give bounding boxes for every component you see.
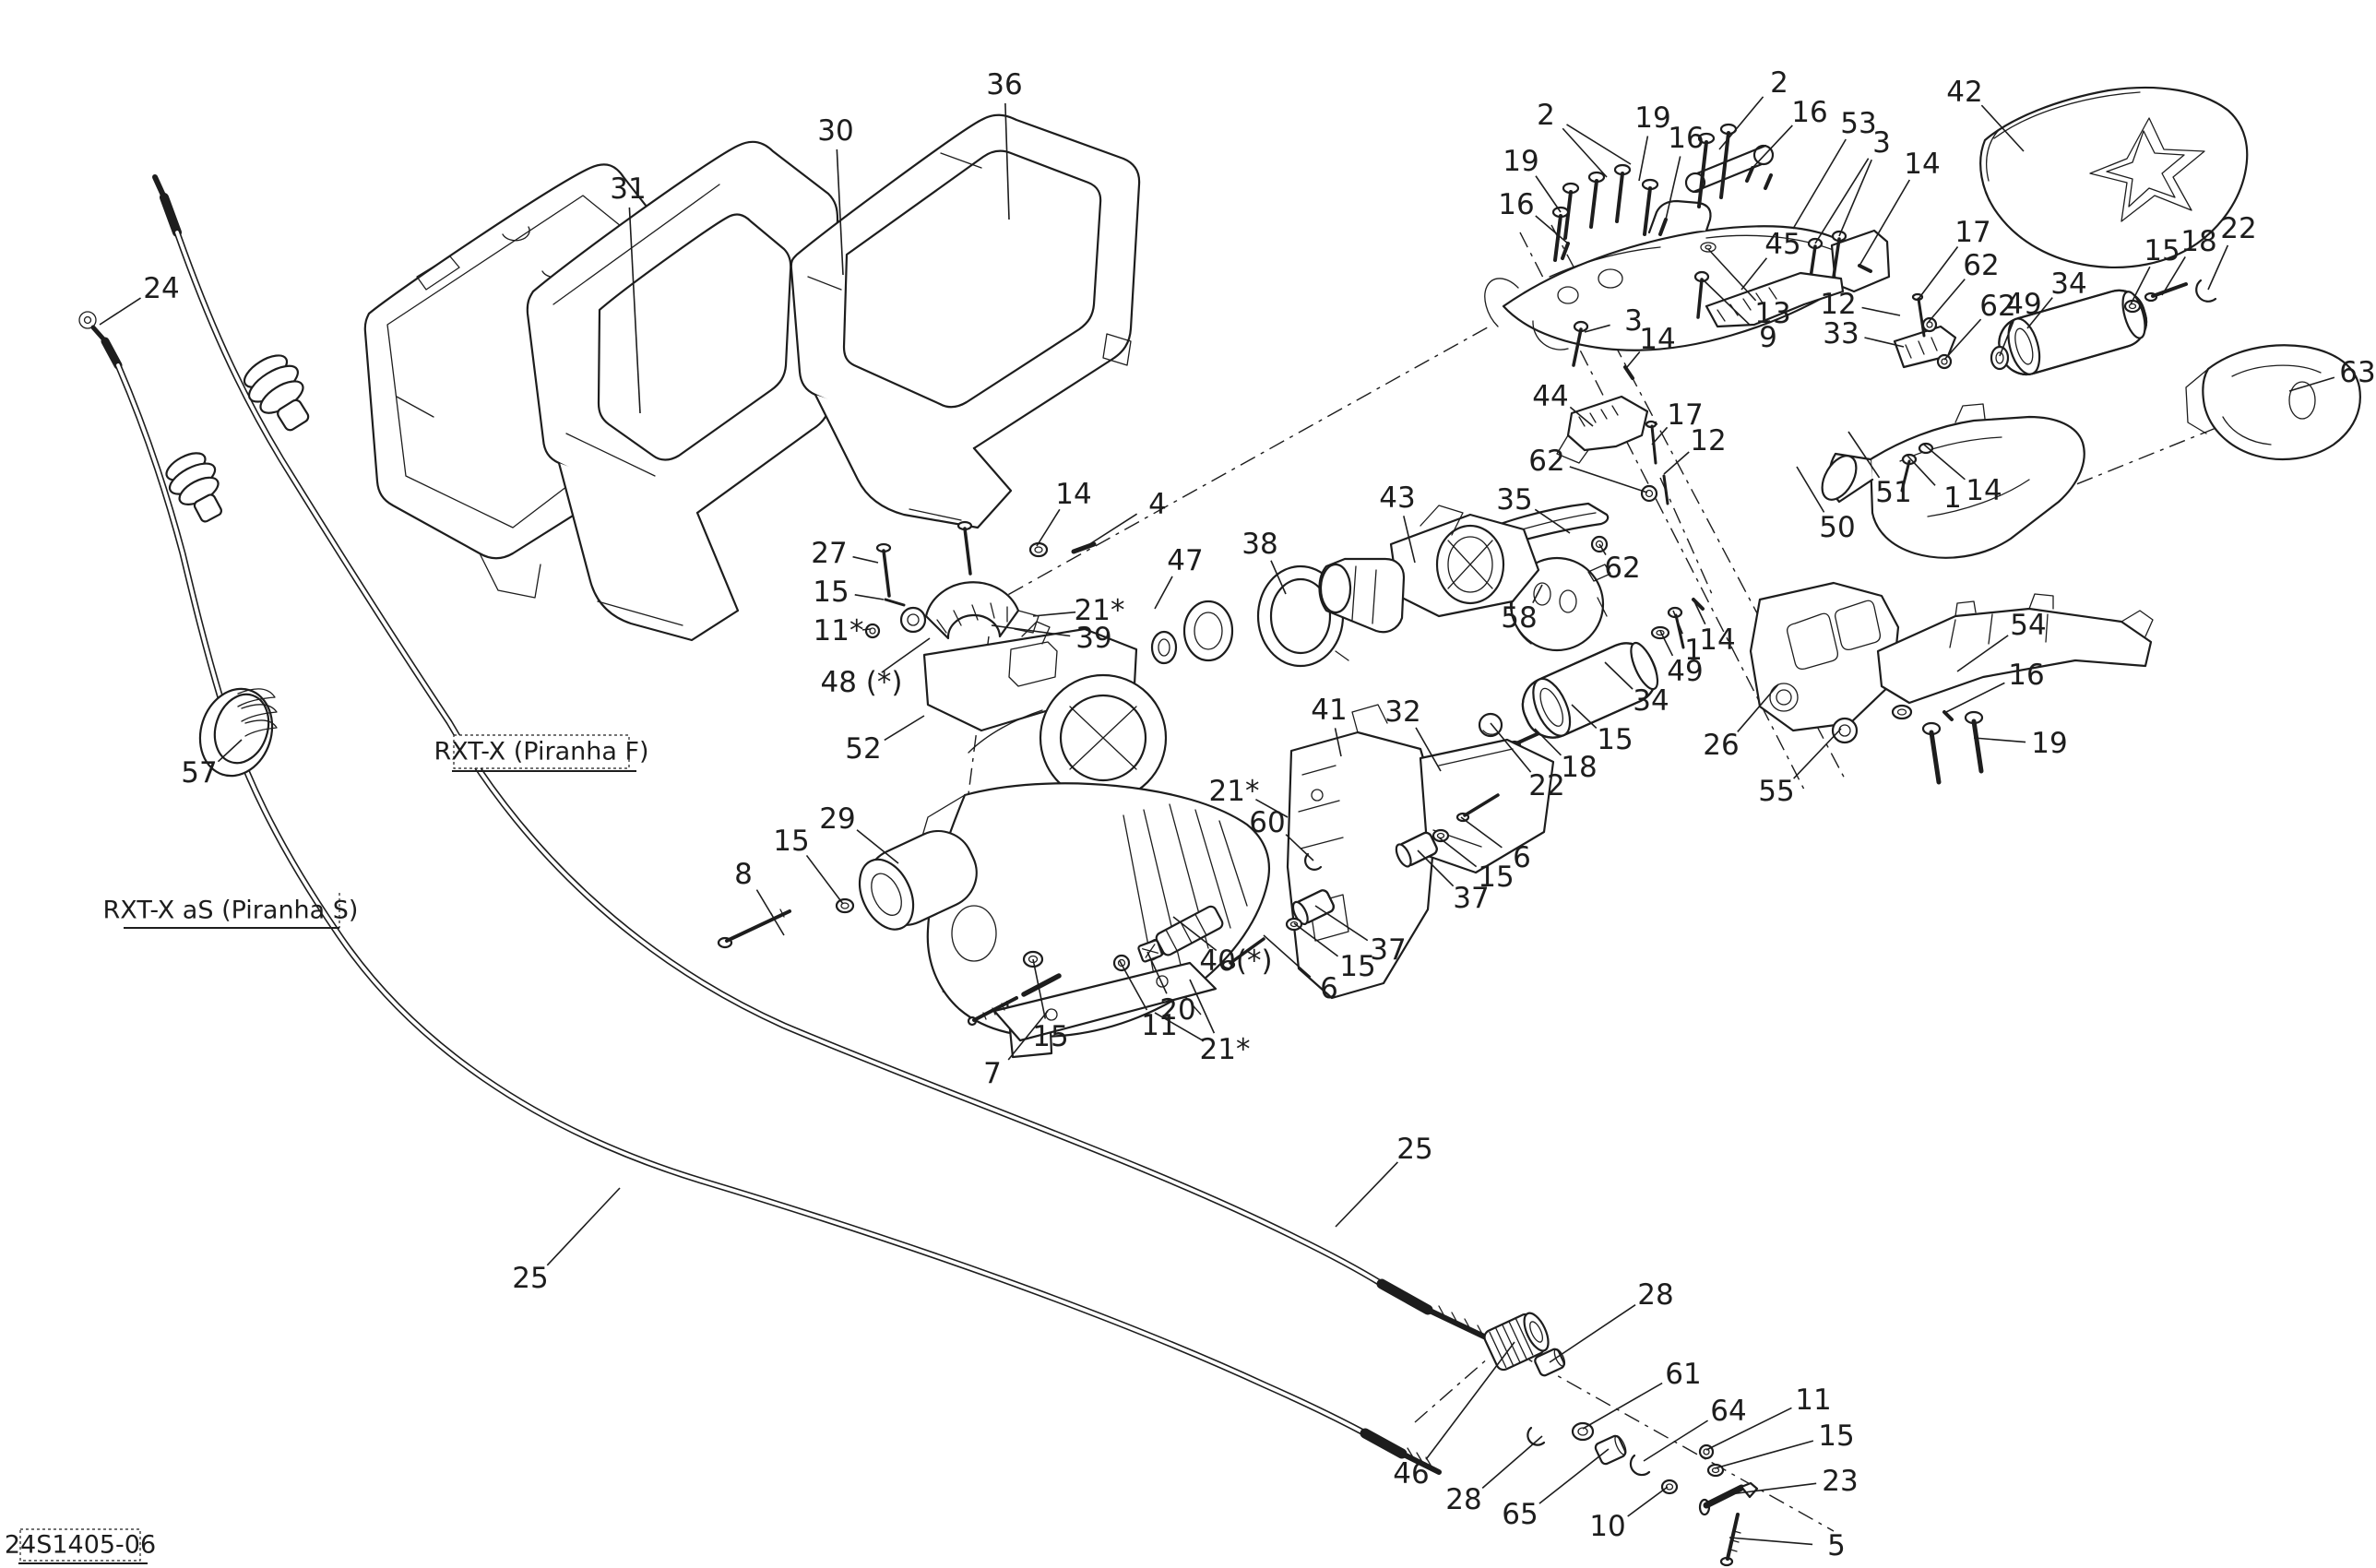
leader-line-19 xyxy=(1974,738,2026,742)
callout-16: 16 xyxy=(2008,659,2044,692)
callout-18: 18 xyxy=(2180,225,2216,258)
callout-6: 6 xyxy=(1513,841,1531,874)
callout-12: 12 xyxy=(1820,288,1856,321)
bolt-8 xyxy=(719,909,790,947)
callout-22: 22 xyxy=(2220,212,2256,245)
callout-22: 22 xyxy=(1528,769,1564,802)
callout-55: 55 xyxy=(1758,775,1794,808)
callout-46: 46 xyxy=(1393,1457,1429,1491)
leader-line-50 xyxy=(1797,467,1824,512)
callout-1: 1 xyxy=(1943,481,1962,515)
leader-line-15 xyxy=(1715,1441,1813,1468)
leader-line-46 xyxy=(1426,1342,1515,1459)
callout-62: 62 xyxy=(1963,249,1999,282)
callout-34: 34 xyxy=(2050,267,2086,301)
leader-line-61 xyxy=(1583,1384,1662,1429)
clip-22-right xyxy=(2196,280,2216,302)
leader-line-62 xyxy=(1928,279,1965,323)
callout-30: 30 xyxy=(817,114,853,148)
callout-44: 44 xyxy=(1532,380,1568,413)
leader-line-25 xyxy=(1336,1162,1397,1227)
leader-line-5 xyxy=(1729,1538,1812,1544)
callout-7: 7 xyxy=(983,1057,1002,1090)
callout-19: 19 xyxy=(2031,727,2067,760)
callout-14: 14 xyxy=(1639,323,1675,356)
callout-15: 15 xyxy=(1818,1420,1854,1453)
callout-62: 62 xyxy=(1979,290,2015,323)
callout-10: 10 xyxy=(1589,1510,1625,1543)
leader-line-8 xyxy=(756,890,784,935)
callout-41: 41 xyxy=(1311,694,1347,727)
bushing-65 xyxy=(1594,1433,1628,1465)
callout-21*: 21* xyxy=(1200,1033,1251,1066)
cable-end-23 xyxy=(1700,1483,1757,1515)
label-text: 24S1405-06 xyxy=(5,1531,156,1560)
leader-line-64 xyxy=(1644,1420,1708,1461)
callout-42: 42 xyxy=(1946,76,1982,109)
pin-17-right xyxy=(1919,299,1924,336)
leader-line-27 xyxy=(853,557,878,563)
leader-line-12 xyxy=(1664,452,1689,474)
callout-15: 15 xyxy=(2144,234,2180,267)
callout-60: 60 xyxy=(1249,806,1285,839)
callout-39: 39 xyxy=(1075,622,1111,655)
leader-line-21* xyxy=(1033,612,1075,616)
washer-14-51 xyxy=(1919,444,1932,453)
callout-31: 31 xyxy=(610,172,646,206)
callout-33: 33 xyxy=(1823,317,1859,350)
callout-2: 2 xyxy=(1537,99,1555,132)
cover-plate-32 xyxy=(1420,740,1553,873)
callout-43: 43 xyxy=(1379,481,1415,515)
callout-26: 26 xyxy=(1703,729,1739,762)
callout-47: 47 xyxy=(1167,544,1203,577)
nut-62-b xyxy=(1938,355,1951,368)
cable-ferrule xyxy=(105,341,118,365)
washer-49-right xyxy=(1991,347,2008,369)
callout-48 (*): 48 (*) xyxy=(821,666,903,699)
cable-boot-upper xyxy=(236,348,323,440)
leader-line-4 xyxy=(1081,514,1137,550)
callout-64: 64 xyxy=(1710,1395,1746,1428)
callout-57: 57 xyxy=(181,756,217,790)
callout-40(*): 40(*) xyxy=(1199,944,1272,978)
callout-28: 28 xyxy=(1637,1278,1673,1312)
leader-line-17 xyxy=(1919,246,1958,299)
callout-58: 58 xyxy=(1501,601,1537,635)
guard-63 xyxy=(2203,345,2360,459)
callout-11: 11 xyxy=(1795,1384,1831,1417)
callout-19: 19 xyxy=(1634,101,1670,135)
stud-5 xyxy=(1721,1515,1740,1565)
leader-line-10 xyxy=(1628,1487,1668,1516)
callout-24: 24 xyxy=(143,272,179,305)
callout-16: 16 xyxy=(1668,122,1704,155)
callout-15: 15 xyxy=(813,576,849,609)
callout-15: 15 xyxy=(773,825,809,858)
callout-12: 12 xyxy=(1690,424,1726,457)
leader-line-24 xyxy=(100,298,141,325)
leader-line-19 xyxy=(1639,137,1647,181)
callout-65: 65 xyxy=(1502,1498,1538,1531)
callout-38: 38 xyxy=(1241,528,1277,561)
callout-9: 9 xyxy=(1759,321,1777,354)
callout-62: 62 xyxy=(1604,552,1640,585)
callout-14: 14 xyxy=(1055,478,1091,511)
callout-50: 50 xyxy=(1819,511,1855,544)
right-side-parts xyxy=(1751,88,2360,782)
callout-6: 6 xyxy=(1320,972,1338,1005)
boxed-label-2: 24S1405-06 xyxy=(5,1529,156,1563)
leader-line-15 xyxy=(855,595,884,600)
leader-line-62 xyxy=(1570,467,1647,493)
callout-14: 14 xyxy=(1699,624,1735,657)
leader-line-19 xyxy=(1536,176,1561,212)
callout-25: 25 xyxy=(512,1262,548,1295)
leader-line-2 xyxy=(1719,97,1764,149)
callout-11*: 11* xyxy=(814,614,864,647)
handlebar-covers xyxy=(365,115,1139,640)
callout-61: 61 xyxy=(1665,1358,1701,1391)
callout-52: 52 xyxy=(845,732,881,766)
bracket-54-bolts xyxy=(1893,706,1982,782)
callout-8: 8 xyxy=(734,858,753,891)
callout-29: 29 xyxy=(819,802,855,836)
callout-15: 15 xyxy=(1478,861,1514,894)
callout-53: 53 xyxy=(1840,107,1876,140)
callout-14: 14 xyxy=(1966,474,2002,507)
callout-63: 63 xyxy=(2339,356,2375,389)
callout-16: 16 xyxy=(1498,188,1534,221)
leader-line-53 xyxy=(1793,139,1846,229)
washer-14-top xyxy=(1030,543,1047,556)
callout-14: 14 xyxy=(1904,148,1940,181)
callout-62: 62 xyxy=(1528,445,1564,478)
callout-51: 51 xyxy=(1875,476,1911,509)
callout-19: 19 xyxy=(1503,145,1538,178)
leader-line-15 xyxy=(807,855,843,904)
pin-18-right xyxy=(2145,284,2186,301)
callout-45: 45 xyxy=(1764,228,1800,261)
callout-35: 35 xyxy=(1496,483,1532,517)
callout-27: 27 xyxy=(811,537,847,570)
label-text: RXT-X aS (Piranha S) xyxy=(103,897,359,925)
callout-34: 34 xyxy=(1633,684,1669,718)
callout-28: 28 xyxy=(1445,1483,1481,1516)
washer-15-29 xyxy=(837,899,853,912)
callout-20: 20 xyxy=(1159,993,1195,1027)
callout-15: 15 xyxy=(1339,950,1375,983)
callout-54: 54 xyxy=(2010,609,2046,642)
leader-line-28 xyxy=(1482,1436,1542,1488)
leader-line-65 xyxy=(1539,1449,1609,1503)
label-text: RXT-X (Piranha F) xyxy=(434,738,648,766)
leader-line-55 xyxy=(1794,729,1841,778)
callout-2: 2 xyxy=(1770,66,1788,100)
spacer-64 xyxy=(1631,1455,1649,1475)
callout-5: 5 xyxy=(1827,1529,1846,1562)
leader-line-14 xyxy=(1037,509,1060,546)
bushing-47 xyxy=(1152,601,1232,663)
leader-line-28 xyxy=(1550,1305,1635,1362)
washer-61 xyxy=(1573,1423,1593,1440)
callout-32: 32 xyxy=(1384,695,1420,729)
bolt-1-center xyxy=(1669,608,1683,647)
switch-housing-26 xyxy=(1751,583,1898,731)
leader-line-12 xyxy=(1862,308,1900,315)
callout-16: 16 xyxy=(1791,96,1827,129)
leader-line-52 xyxy=(885,716,924,740)
bracket-44 xyxy=(1568,397,1647,450)
callout-23: 23 xyxy=(1822,1465,1858,1498)
boxed-label-0: RXT-X (Piranha F) xyxy=(434,735,648,771)
callout-15: 15 xyxy=(1032,1020,1068,1053)
knob-55 xyxy=(1833,719,1857,742)
leader-line-25 xyxy=(547,1188,620,1265)
leader-line-47 xyxy=(1155,576,1172,609)
washer-49-center xyxy=(1652,627,1669,638)
leader-line-14 xyxy=(1627,351,1640,367)
boxed-label-1: RXT-X aS (Piranha S) xyxy=(103,893,359,928)
callout-17: 17 xyxy=(1954,216,1990,249)
exploded-parts-diagram: 2431303621916216533144219164517621233139… xyxy=(0,0,2376,1568)
callout-3: 3 xyxy=(1872,126,1891,160)
callout-21*: 21* xyxy=(1209,775,1260,808)
callout-4: 4 xyxy=(1148,488,1167,521)
steering-clamp-48 xyxy=(901,582,1039,638)
washer-10 xyxy=(1662,1480,1677,1493)
callout-15: 15 xyxy=(1597,723,1633,756)
leader-line-16 xyxy=(1536,216,1568,244)
diagram-svg: 2431303621916216533144219164517621233139… xyxy=(0,0,2376,1568)
callout-25: 25 xyxy=(1396,1133,1432,1166)
callout-36: 36 xyxy=(986,68,1022,101)
callout-18: 18 xyxy=(1561,751,1597,784)
